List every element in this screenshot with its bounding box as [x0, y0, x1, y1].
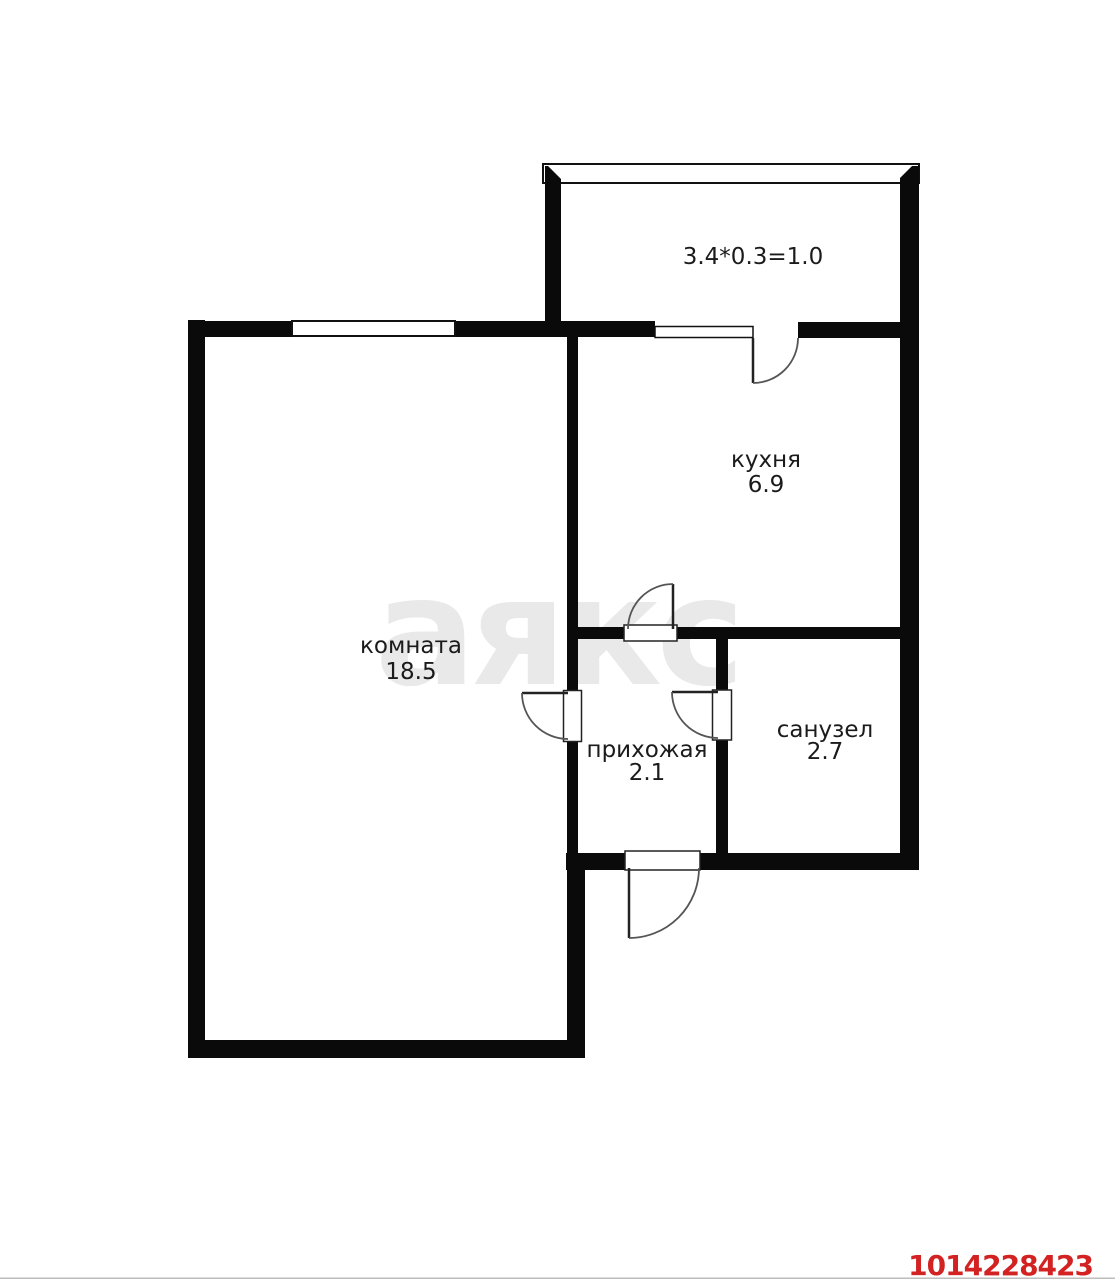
kitchen-area: 6.9 — [748, 472, 785, 498]
balcony-parapet — [543, 164, 919, 183]
wall-divider-room-lower — [567, 740, 578, 853]
room-area: 18.5 — [385, 659, 436, 685]
listing-id: 1014228423 — [908, 1249, 1093, 1280]
kitchen-label: кухня — [731, 447, 801, 473]
wall-bottom-exterior — [566, 853, 919, 870]
floor-plan: аякс — [0, 0, 1115, 1280]
wall-divider-room-upper — [567, 337, 578, 692]
wall-room-left — [188, 320, 205, 1058]
entrance-door-arc — [629, 868, 699, 938]
bathroom-area: 2.7 — [807, 739, 844, 765]
wall-room-bottom — [188, 1040, 585, 1058]
wall-right-exterior — [900, 166, 919, 870]
bathroom-door-jamb — [713, 690, 732, 740]
bottom-edge-line — [0, 1278, 1115, 1280]
balcony-window — [655, 327, 753, 338]
balcony-door-arc — [753, 338, 798, 383]
wall-hall-bath-divider — [716, 639, 728, 853]
room-door-jamb — [564, 691, 582, 742]
entrance-door-jamb — [625, 851, 700, 870]
kitchen-door-jamb — [624, 625, 677, 641]
balcony-formula-label: 3.4*0.3=1.0 — [683, 244, 824, 270]
floor-plan-svg: аякс — [0, 0, 1115, 1280]
hallway-area: 2.1 — [629, 760, 666, 786]
room-window — [292, 321, 455, 336]
wall-room-right-lower — [567, 853, 585, 1058]
room-label: комната — [360, 633, 462, 659]
wall-balcony-left — [545, 166, 561, 337]
